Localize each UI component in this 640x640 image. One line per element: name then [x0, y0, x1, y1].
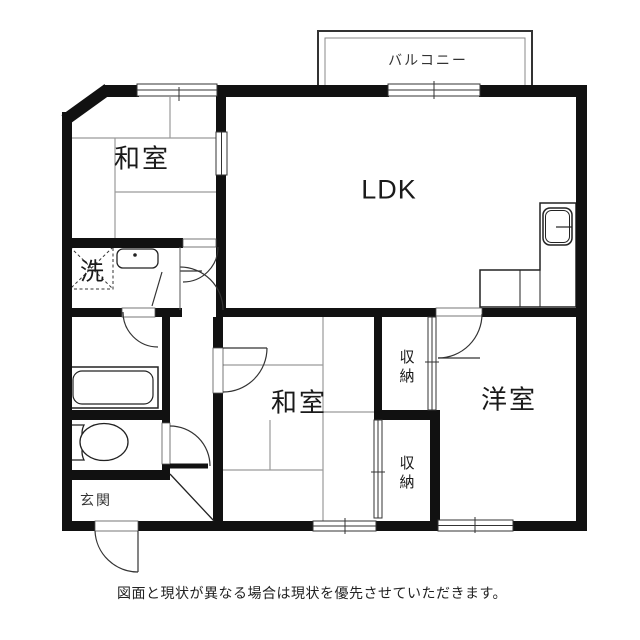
floor-plan-drawing — [0, 0, 640, 640]
label-washitsu-top: 和室 — [114, 139, 170, 176]
label-balcony: バルコニー — [388, 50, 468, 70]
disclaimer-text: 図面と現状が異なる場合は現状を優先させていただきます。 — [117, 583, 507, 603]
toilet-door-arc — [170, 426, 210, 466]
label-storage-top: 収納 — [396, 349, 417, 387]
entrance-door-arc — [95, 531, 138, 572]
closet-top-door — [425, 317, 439, 410]
window-youshitsu-bottom — [438, 517, 513, 533]
label-washitsu-mid: 和室 — [271, 383, 327, 420]
washitsu-mid-door-arc — [223, 348, 267, 392]
floor-plan: 和室 LDK 和室 洋室 収納 収納 洗 玄関 バルコニー 図面と現状が異なる場… — [0, 0, 640, 640]
window-balcony — [388, 81, 480, 99]
sliding-door-washitsu-ldk — [216, 132, 227, 175]
vanity-sink-shape — [117, 249, 158, 268]
genkan-step-line — [170, 474, 214, 521]
label-laundry: 洗 — [80, 252, 104, 287]
hall-door-arc — [183, 247, 218, 282]
bathtub-shape — [68, 367, 158, 408]
label-genkan: 玄関 — [80, 490, 112, 510]
toilet-shape — [68, 424, 128, 461]
youshitsu-door-arc — [438, 314, 482, 358]
label-youshitsu: 洋室 — [481, 380, 537, 417]
closet-bottom-door — [371, 420, 385, 518]
label-ldk: LDK — [361, 175, 417, 206]
kitchen-sink-shape — [543, 208, 572, 245]
label-storage-bottom: 収納 — [396, 455, 417, 493]
window-washitsu-top — [137, 84, 217, 101]
